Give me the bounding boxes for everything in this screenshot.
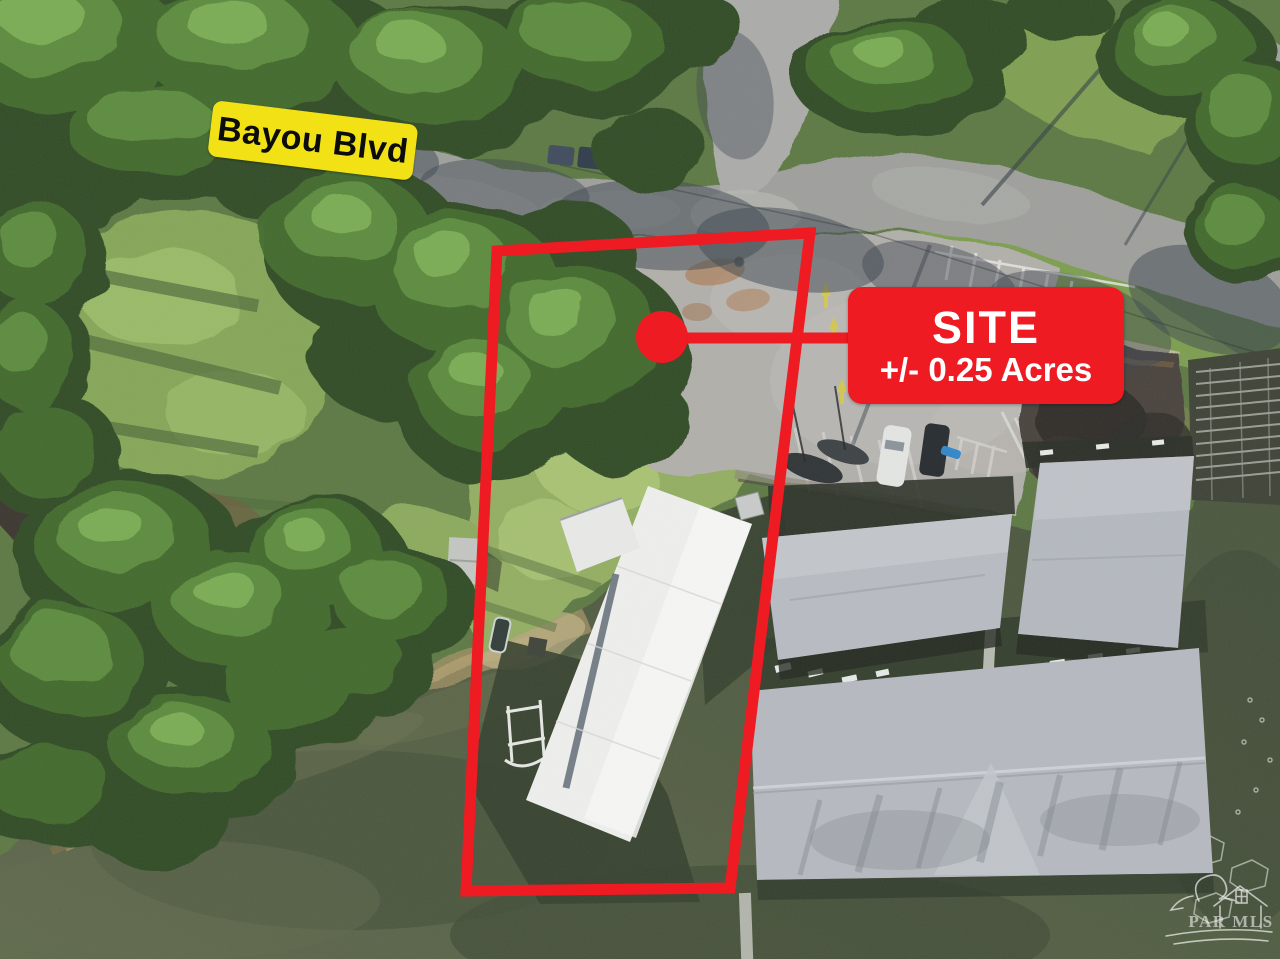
aerial-scene: PAR MLS	[0, 0, 1280, 959]
site-callout-label: SITE +/- 0.25 Acres	[848, 287, 1124, 404]
photo-grain	[0, 0, 1280, 959]
aerial-listing-photo: PAR MLS Bayou Blvd SITE +/- 0.25 Acres	[0, 0, 1280, 959]
watermark-text: PAR MLS	[1188, 912, 1273, 931]
site-marker-dot	[636, 311, 688, 363]
site-callout-title: SITE	[932, 305, 1040, 350]
site-callout-acreage: +/- 0.25 Acres	[880, 353, 1093, 386]
